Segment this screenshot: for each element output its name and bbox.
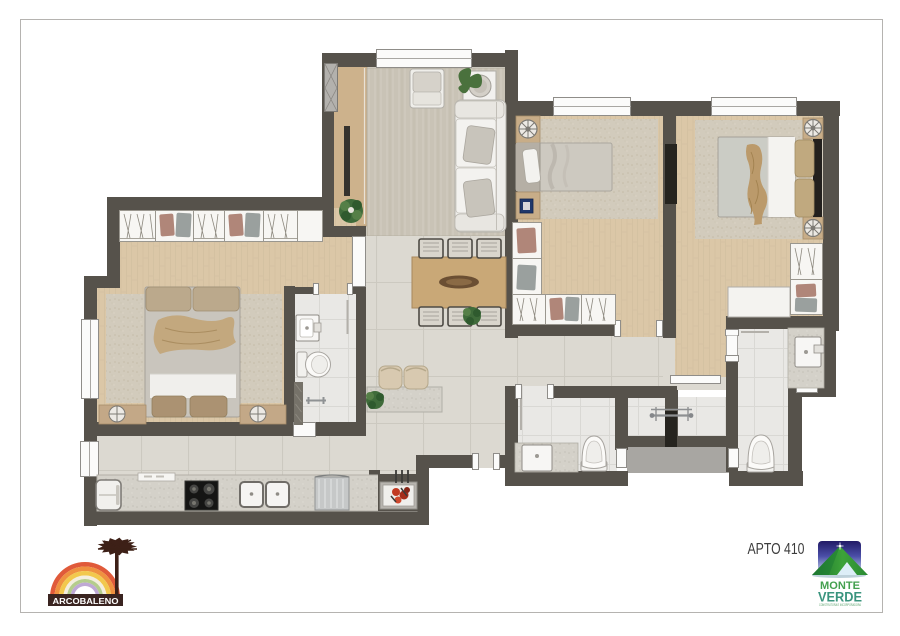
svg-text:CONSTRUTORA E INCORPORADORA: CONSTRUTORA E INCORPORADORA xyxy=(819,603,862,607)
svg-text:ARCOBALENO: ARCOBALENO xyxy=(53,596,119,606)
svg-text:APTO 410: APTO 410 xyxy=(748,541,805,558)
